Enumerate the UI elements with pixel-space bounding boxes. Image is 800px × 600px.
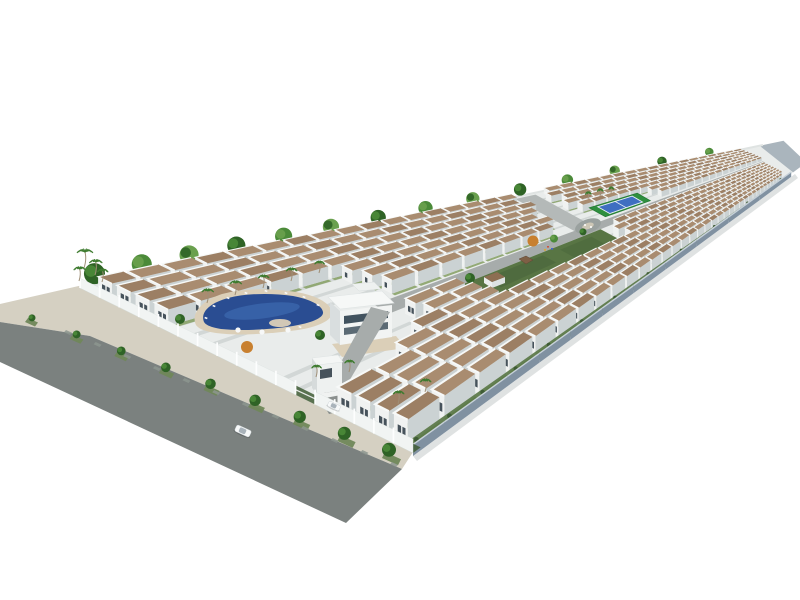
development-rendering: Aerial 3D architectural rendering of a g…: [0, 0, 800, 600]
rendering-canvas: [0, 0, 800, 600]
